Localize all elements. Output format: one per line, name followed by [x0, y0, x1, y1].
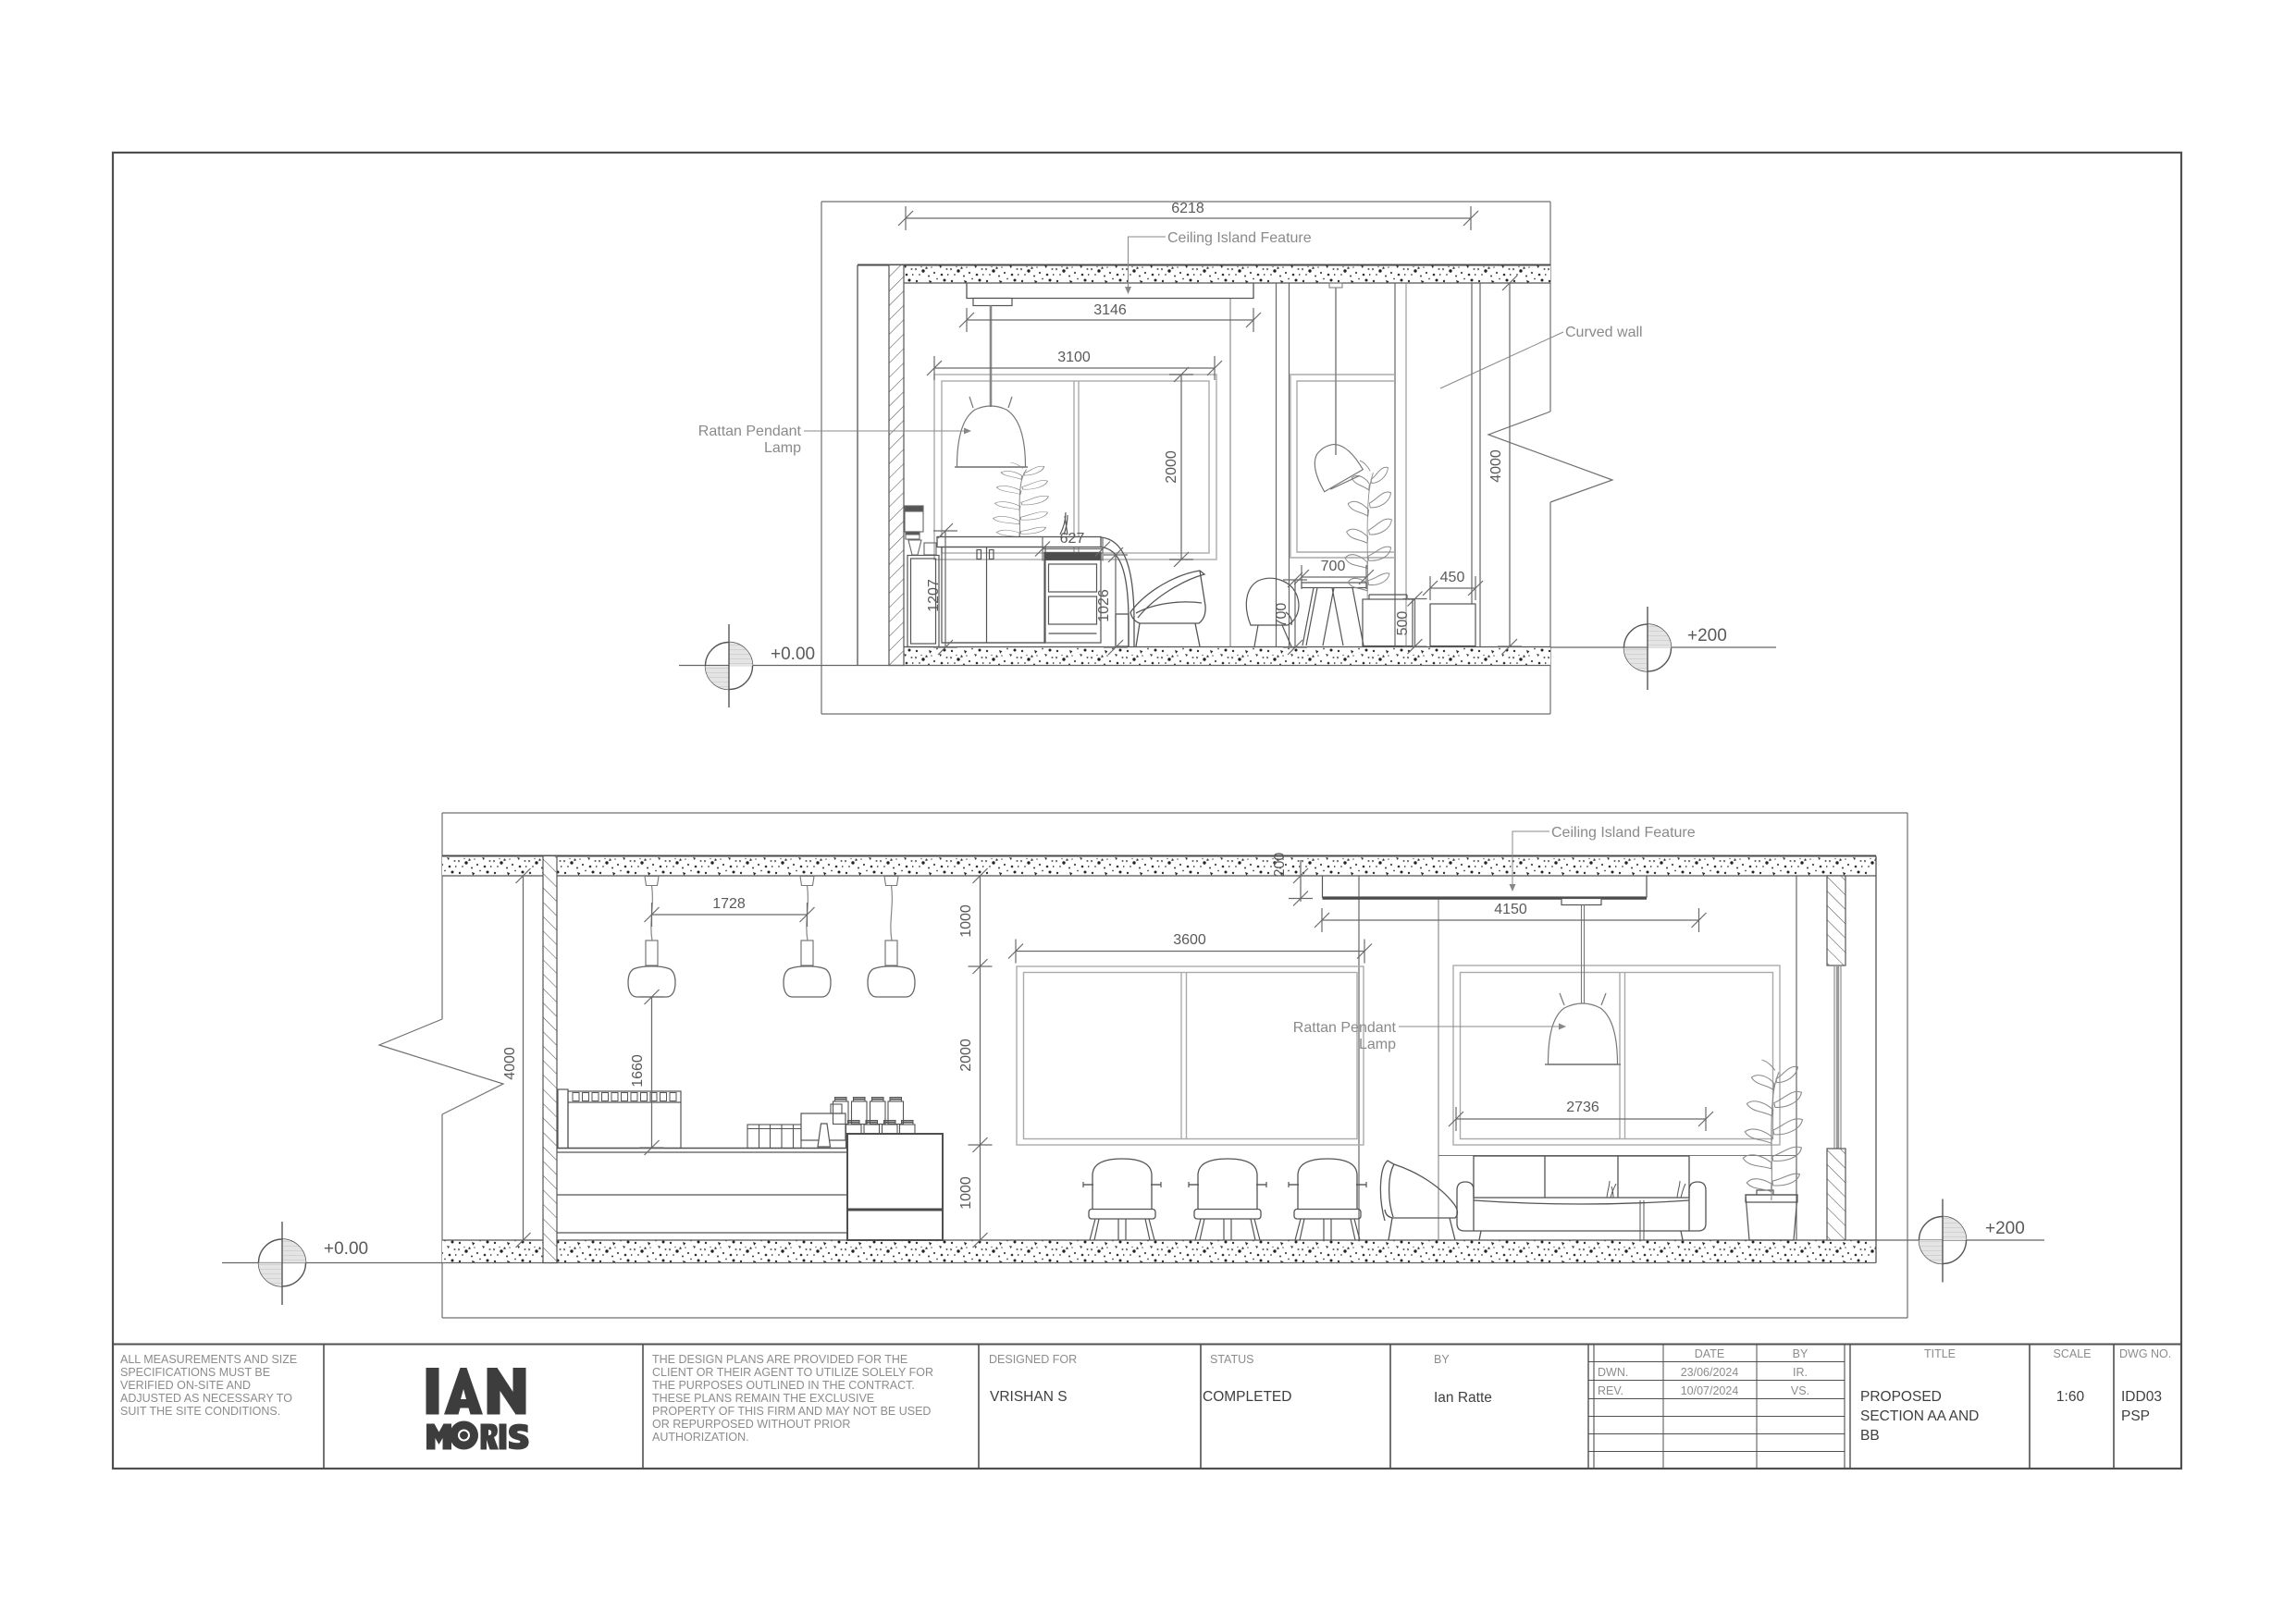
svg-text:VS.: VS. [1791, 1384, 1809, 1397]
svg-text:SUIT THE SITE CONDITIONS.: SUIT THE SITE CONDITIONS. [120, 1405, 280, 1418]
svg-text:2000: 2000 [958, 1039, 974, 1072]
svg-text:500: 500 [1395, 611, 1411, 636]
svg-text:700: 700 [1321, 559, 1346, 574]
svg-text:BY: BY [1793, 1347, 1808, 1360]
svg-text:Curved wall: Curved wall [1565, 325, 1643, 340]
svg-text:700: 700 [1274, 603, 1290, 628]
svg-text:COMPLETED: COMPLETED [1203, 1389, 1291, 1405]
svg-text:CLIENT OR THEIR AGENT TO UTILI: CLIENT OR THEIR AGENT TO UTILIZE SOLELY … [652, 1366, 933, 1379]
svg-text:Rattan Pendant: Rattan Pendant [698, 424, 802, 439]
svg-text:3600: 3600 [1173, 932, 1206, 948]
svg-text:THE PURPOSES OUTLINED IN THE C: THE PURPOSES OUTLINED IN THE CONTRACT. [652, 1379, 915, 1392]
svg-text:Lamp: Lamp [764, 440, 801, 456]
svg-text:10/07/2024: 10/07/2024 [1681, 1384, 1739, 1397]
svg-text:REV.: REV. [1598, 1384, 1623, 1397]
svg-text:4000: 4000 [502, 1047, 518, 1080]
svg-text:+0.00: +0.00 [324, 1239, 368, 1259]
svg-text:IR.: IR. [1793, 1366, 1808, 1379]
svg-text:DWG NO.: DWG NO. [2119, 1347, 2171, 1360]
svg-text:VERIFIED ON-SITE AND: VERIFIED ON-SITE AND [120, 1379, 251, 1392]
svg-text:STATUS: STATUS [1210, 1353, 1253, 1366]
svg-text:2736: 2736 [1566, 1100, 1599, 1115]
svg-text:1:60: 1:60 [2056, 1389, 2085, 1405]
svg-text:3146: 3146 [1093, 302, 1127, 318]
svg-text:THESE PLANS REMAIN THE EXCLUSI: THESE PLANS REMAIN THE EXCLUSIVE [652, 1392, 874, 1405]
svg-text:1000: 1000 [958, 1176, 974, 1210]
svg-text:2000: 2000 [1164, 450, 1179, 484]
svg-text:VRISHAN S: VRISHAN S [990, 1389, 1068, 1405]
svg-text:OR REPURPOSED WITHOUT PRIOR: OR REPURPOSED WITHOUT PRIOR [652, 1418, 850, 1431]
svg-text:1026: 1026 [1096, 589, 1112, 622]
svg-text:627: 627 [1060, 531, 1085, 547]
svg-text:1728: 1728 [712, 896, 746, 912]
svg-text:DWN.: DWN. [1598, 1366, 1628, 1379]
svg-text:SECTION AA AND: SECTION AA AND [1860, 1408, 1979, 1424]
svg-text:PROPERTY OF THIS FIRM AND MAY: PROPERTY OF THIS FIRM AND MAY NOT BE USE… [652, 1405, 931, 1418]
svg-text:23/06/2024: 23/06/2024 [1681, 1366, 1739, 1379]
svg-text:1207: 1207 [926, 579, 942, 612]
svg-text:BY: BY [1434, 1353, 1450, 1366]
svg-text:1000: 1000 [958, 904, 974, 938]
svg-text:Lamp: Lamp [1359, 1037, 1396, 1052]
svg-text:DATE: DATE [1695, 1347, 1724, 1360]
svg-text:ALL MEASUREMENTS AND SIZE: ALL MEASUREMENTS AND SIZE [120, 1353, 297, 1366]
svg-text:3100: 3100 [1057, 350, 1091, 365]
svg-text:PROPOSED: PROPOSED [1860, 1389, 1942, 1405]
svg-text:SPECIFICATIONS MUST BE: SPECIFICATIONS MUST BE [120, 1366, 270, 1379]
svg-text:AUTHORIZATION.: AUTHORIZATION. [652, 1431, 749, 1444]
svg-text:1660: 1660 [630, 1054, 646, 1088]
svg-text:TITLE: TITLE [1924, 1347, 1956, 1360]
svg-text:4150: 4150 [1494, 902, 1527, 917]
svg-text:ADJUSTED AS NECESSARY TO: ADJUSTED AS NECESSARY TO [120, 1392, 292, 1405]
svg-text:PSP: PSP [2121, 1408, 2150, 1424]
svg-text:450: 450 [1440, 570, 1465, 585]
svg-text:+200: +200 [1687, 626, 1727, 646]
svg-text:IDD03: IDD03 [2121, 1389, 2162, 1405]
svg-text:SCALE: SCALE [2054, 1347, 2092, 1360]
svg-text:Ceiling Island Feature: Ceiling Island Feature [1167, 230, 1312, 246]
svg-text:Rattan Pendant: Rattan Pendant [1293, 1020, 1397, 1036]
svg-text:Ian Ratte: Ian Ratte [1434, 1390, 1492, 1406]
svg-text:DESIGNED FOR: DESIGNED FOR [989, 1353, 1077, 1366]
svg-text:Ceiling Island Feature: Ceiling Island Feature [1551, 825, 1696, 841]
svg-text:BB: BB [1860, 1428, 1880, 1444]
svg-text:+200: +200 [1985, 1219, 2025, 1238]
svg-text:200: 200 [1272, 853, 1288, 878]
svg-text:4000: 4000 [1488, 449, 1504, 483]
svg-text:6218: 6218 [1171, 201, 1204, 216]
svg-text:THE DESIGN PLANS ARE PROVIDED: THE DESIGN PLANS ARE PROVIDED FOR THE [652, 1353, 907, 1366]
svg-text:+0.00: +0.00 [771, 645, 815, 664]
